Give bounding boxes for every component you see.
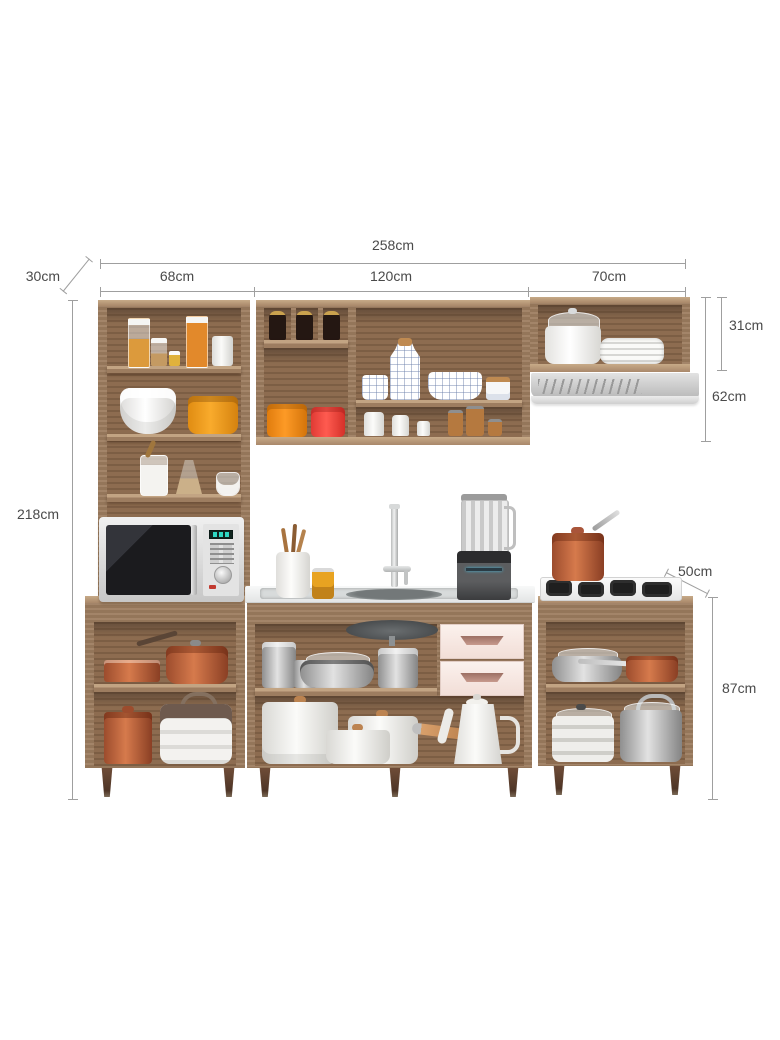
bottle-wood-cap [398,338,412,346]
dim-line-total-width [100,263,686,264]
casserole-dish [545,326,601,364]
faucet-column [391,507,398,587]
cereal-container [128,318,150,368]
faucet-top-cap [389,504,400,509]
dim-tick-left-middle [254,287,255,297]
base-middle-leg-3 [506,768,520,797]
base-right-leg-1 [552,766,566,795]
wine-bottle-3 [323,311,340,340]
cooktop-burner-1 [546,580,572,596]
dim-line-wall-height [721,297,722,371]
blender-handle [504,506,516,550]
striped-pot [552,716,614,762]
middle-cabinet-bottom-edge [256,437,530,445]
dim-label-base-depth: 50cm [678,563,712,579]
utensil-holder [276,552,310,598]
dim-label-wall-hood-height: 62cm [712,388,746,404]
wine-rack-bottom-board [264,340,348,348]
microwave-start-button [209,585,216,589]
white-small-pot [326,730,390,764]
honey-jar [312,568,334,599]
copper-casserole [166,646,228,684]
orange-storage-pot [267,404,307,437]
snack-jar [151,338,167,366]
base-middle-leg-2 [388,768,402,797]
red-storage-pot [311,407,345,437]
white-canister [212,336,233,366]
wall-cabinet-right-bottom-edge [530,364,690,372]
amber-clamp-jar-3 [488,419,502,436]
cooktop-burner-2 [578,582,604,597]
orange-canister [188,396,238,434]
pantry-top-edge [98,300,250,306]
amber-clamp-jar-2 [466,406,484,436]
checkered-bowl [428,372,482,400]
dim-line-wall-depth [63,259,90,292]
sink-bowl [346,589,442,600]
cooktop-burner-3 [610,580,636,596]
checkered-creamer [362,375,388,400]
microwave-door [106,525,191,595]
casserole-lid-knob [568,308,577,314]
dim-label-total-width: 258cm [363,237,423,253]
blender-jar [461,500,509,554]
kitchen-cabinet-product-diagram: 258cm 68cm 120cm 70cm 30cm 218cm 31cm 62… [0,0,780,1040]
frying-pan [300,660,374,688]
microwave-display-digits [213,532,229,537]
cooktop-burner-4 [642,582,672,597]
base-right-leg-2 [668,766,682,795]
amber-clamp-jar-1 [448,410,463,436]
base-left-leg-2 [222,768,236,797]
copper-roasting-pan [104,660,160,682]
white-spice-jar-1 [364,412,384,436]
dim-label-right-width: 70cm [569,268,649,284]
blender-base [457,551,511,600]
range-hood-vents [538,379,642,394]
dim-line-base-height [712,597,713,800]
pasta-container [186,316,208,368]
stove-copper-pot [552,533,604,581]
dim-label-total-height: 218cm [10,506,66,522]
dim-label-wall-depth: 30cm [8,268,60,284]
dim-label-wall-height: 31cm [729,317,763,333]
teapot-handle [500,716,520,754]
dim-tick-middle-right [528,287,529,297]
large-white-pot [160,704,232,764]
plates-stack [600,338,664,364]
pantry-shelf-2 [107,434,241,441]
microwave-buttons [210,543,234,564]
teapot-knob [473,694,481,700]
blender-control-strip [466,568,502,571]
faucet-spout [404,570,408,585]
copper-saucepan [626,656,678,682]
dim-label-middle-width: 120cm [351,268,431,284]
steel-pot-tall [262,642,296,688]
checkered-bottle [390,342,420,400]
base-left-shelf [94,684,236,692]
striped-pot-knob [576,704,586,710]
white-spice-jar-3 [417,421,430,436]
pantry-shelf-1 [107,366,241,373]
wine-bottle-2 [296,311,313,340]
small-spice-jar [169,351,180,366]
middle-cabinet-shelf [356,400,522,407]
copper-canister [104,712,152,764]
sink-drain-pipe [389,636,395,646]
small-lidded-jar [486,377,510,400]
base-right-shelf [546,684,685,692]
wine-bottle-1 [269,311,286,340]
range-hood-front-lip [531,396,699,404]
base-left-leg-1 [100,768,114,797]
base-middle-leg-1 [258,768,272,797]
wall-cabinet-middle-top-edge [256,300,530,306]
copper-canister-knob [122,706,134,713]
base-middle-shelf [255,688,437,696]
dim-line-module-widths [100,291,686,292]
wall-cabinet-right-top-edge [530,297,690,303]
dim-line-wall-hood-height [705,297,706,442]
microwave-door-handle [191,525,197,595]
milk-jar [140,455,168,496]
steel-pot-lidded [378,648,418,688]
microwave-knob [214,566,232,584]
glass-jar [216,472,240,496]
stove-pot-ladle [591,509,620,531]
steel-stockpot [620,710,682,762]
bowl-stack [120,388,176,434]
dim-line-total-height [72,300,73,800]
dim-label-base-height: 87cm [722,680,756,696]
dim-label-left-width: 68cm [137,268,217,284]
white-spice-jar-2 [392,415,409,436]
